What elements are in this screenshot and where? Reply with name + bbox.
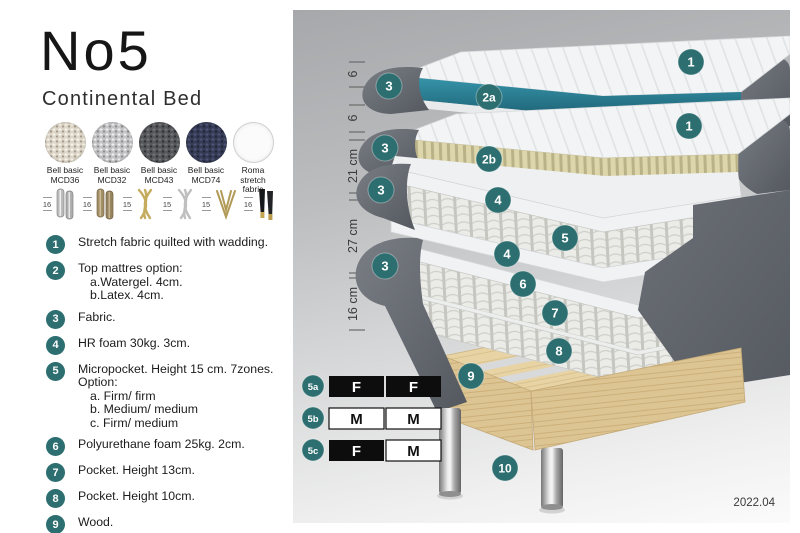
swatch-code: MCD43	[141, 176, 177, 186]
leg-option-cylinder-bronze: 16	[80, 186, 120, 222]
leg-height-label: 16	[244, 196, 253, 213]
feature-item-6: 6 Polyurethane foam 25kg. 2cm.	[46, 438, 291, 456]
swatch-code: MCD74	[188, 176, 224, 186]
feature-item-3: 3 Fabric.	[46, 311, 291, 329]
feature-text: Fabric.	[78, 311, 116, 329]
feature-item-4: 4 HR foam 30kg. 3cm.	[46, 337, 291, 355]
svg-text:3: 3	[377, 183, 384, 198]
badge-7-pocket13: 7	[542, 300, 568, 326]
swatch-texture	[139, 122, 180, 163]
swatch-bell-basic-mcd32: Bell basic MCD32	[91, 122, 133, 195]
version-label: 2022.04	[733, 497, 775, 509]
feature-text: Polyurethane foam 25kg. 2cm.	[78, 438, 245, 456]
firmness-badge-label: 5c	[308, 446, 319, 457]
swatch-code: MCD32	[94, 176, 130, 186]
feature-main-line: Micropocket. Height 15 cm. 7zones. Optio…	[78, 363, 291, 390]
firmness-row-5c: 5c F M	[302, 439, 441, 461]
feature-text: Pocket. Height 13cm.	[78, 464, 195, 482]
svg-text:3: 3	[385, 79, 392, 94]
firmness-value: F	[352, 443, 361, 460]
feature-sub-line: a.Watergel. 4cm.	[90, 276, 183, 290]
measure-topper1: 6	[346, 70, 360, 77]
cross-gold-leg-icon	[134, 186, 158, 222]
feature-sub-line: b.Latex. 4cm.	[90, 289, 183, 303]
metal-leg-front-center	[541, 448, 563, 508]
firmness-row-5b: 5b M M	[302, 407, 441, 429]
leg-height-label: 15	[123, 196, 132, 213]
svg-text:8: 8	[555, 344, 562, 359]
firmness-value: M	[407, 411, 420, 428]
badge-9-wood: 9	[458, 363, 484, 389]
feature-text: Micropocket. Height 15 cm. 7zones. Optio…	[78, 363, 291, 431]
swatch-label: Bell basic MCD43	[141, 166, 177, 185]
product-sheet: No5 Continental Bed Bell basic MCD36 Bel…	[0, 0, 800, 533]
svg-text:1: 1	[687, 55, 694, 70]
leg-option-cylinder-silver: 16	[40, 186, 80, 222]
feature-item-1: 1 Stretch fabric quilted with wadding.	[46, 236, 291, 254]
measure-topper2: 6	[346, 114, 360, 121]
badge-3-mattress2: 3	[372, 253, 398, 279]
feature-list: 1 Stretch fabric quilted with wadding. 2…	[46, 236, 291, 533]
badge-8-pocket10: 8	[546, 338, 572, 364]
measure-mattress-27cm: 27 cm	[346, 219, 360, 253]
badge-5-micropocket: 5	[552, 225, 578, 251]
leg-option-black-gold: 16	[240, 186, 280, 222]
badge-3-topper1: 3	[376, 73, 402, 99]
leg-option-hairpin-gold: 15	[200, 186, 240, 222]
feature-number-badge: 8	[46, 489, 65, 508]
measure-leg-16cm: 16 cm	[346, 287, 360, 321]
feature-item-9: 9 Wood.	[46, 516, 291, 533]
leg-foot	[541, 504, 563, 510]
leg-height-label: 16	[83, 196, 92, 213]
swatch-bell-basic-mcd43: Bell basic MCD43	[138, 122, 180, 195]
product-title: No5	[40, 18, 152, 83]
feature-text: HR foam 30kg. 3cm.	[78, 337, 190, 355]
svg-text:6: 6	[519, 277, 526, 292]
feature-number-badge: 3	[46, 310, 65, 329]
cylinder-bronze-leg-icon	[94, 186, 118, 222]
feature-number-badge: 9	[46, 515, 65, 533]
feature-sub-line: a. Firm/ firm	[90, 390, 291, 404]
feature-sub-line: b. Medium/ medium	[90, 403, 291, 417]
feature-number-badge: 2	[46, 261, 65, 280]
feature-number-badge: 5	[46, 362, 65, 381]
firmness-value: F	[409, 379, 418, 396]
swatch-bell-basic-mcd36: Bell basic MCD36	[44, 122, 86, 195]
feature-number-badge: 4	[46, 336, 65, 355]
swatch-texture	[92, 122, 133, 163]
firmness-row-5a: 5a F F	[302, 375, 441, 397]
hairpin-leg-icon	[213, 186, 239, 222]
leg-foot	[439, 491, 461, 497]
feature-item-7: 7 Pocket. Height 13cm.	[46, 464, 291, 482]
svg-text:2b: 2b	[482, 153, 496, 167]
firmness-value: M	[350, 411, 363, 428]
badge-2a-watergel: 2a	[476, 84, 502, 110]
svg-text:10: 10	[498, 462, 512, 476]
firmness-value: F	[352, 379, 361, 396]
badge-10-metal-leg: 10	[492, 455, 518, 481]
feature-number-badge: 1	[46, 235, 65, 254]
swatch-code: MCD36	[47, 176, 83, 186]
feature-item-5: 5 Micropocket. Height 15 cm. 7zones. Opt…	[46, 363, 291, 431]
svg-text:7: 7	[551, 306, 558, 321]
feature-main-line: Top mattres option:	[78, 262, 183, 276]
svg-text:1: 1	[685, 119, 692, 134]
leg-option-cross-gold: 15	[120, 186, 160, 222]
black-gold-leg-icon	[255, 186, 277, 222]
swatch-label: Bell basic MCD36	[47, 166, 83, 185]
bed-cutaway-illustration: 6 6 21 cm 27 cm 16 cm	[293, 10, 790, 523]
metal-leg-front-left	[439, 408, 461, 494]
swatch-label: Bell basic MCD74	[188, 166, 224, 185]
svg-text:9: 9	[467, 369, 474, 384]
badge-3-topper2: 3	[372, 135, 398, 161]
swatch-bell-basic-mcd74: Bell basic MCD74	[185, 122, 227, 195]
feature-item-8: 8 Pocket. Height 10cm.	[46, 490, 291, 508]
leg-options: 16 16 15	[40, 186, 280, 222]
cutaway-panel: 6 6 21 cm 27 cm 16 cm	[293, 10, 790, 523]
swatch-roma-stretch: Roma stretch fabric	[232, 122, 274, 195]
svg-text:4: 4	[494, 193, 502, 208]
svg-text:2a: 2a	[482, 91, 496, 105]
firmness-badge-label: 5b	[307, 414, 318, 425]
firmness-badge-label: 5a	[308, 382, 319, 393]
swatch-texture	[233, 122, 274, 163]
product-subtitle: Continental Bed	[42, 88, 202, 111]
swatch-label: Bell basic MCD32	[94, 166, 130, 185]
feature-text: Stretch fabric quilted with wadding.	[78, 236, 268, 254]
leg-option-cross-silver: 15	[160, 186, 200, 222]
info-column: No5 Continental Bed Bell basic MCD36 Bel…	[0, 0, 293, 533]
feature-text: Pocket. Height 10cm.	[78, 490, 195, 508]
cylinder-silver-leg-icon	[54, 186, 78, 222]
leg-height-label: 16	[43, 196, 52, 213]
swatch-texture	[45, 122, 86, 163]
feature-text: Wood.	[78, 516, 113, 533]
badge-4-foam-top: 4	[485, 187, 511, 213]
badge-6-pu-foam: 6	[510, 271, 536, 297]
badge-4-foam-bottom: 4	[494, 241, 520, 267]
leg-height-label: 15	[202, 196, 211, 213]
badge-1-topper1: 1	[678, 49, 704, 75]
feature-number-badge: 7	[46, 463, 65, 482]
feature-text: Top mattres option: a.Watergel. 4cm. b.L…	[78, 262, 183, 303]
svg-text:3: 3	[381, 141, 388, 156]
leg-height-label: 15	[163, 196, 172, 213]
svg-text:4: 4	[503, 247, 511, 262]
feature-item-2: 2 Top mattres option: a.Watergel. 4cm. b…	[46, 262, 291, 303]
swatch-texture	[186, 122, 227, 163]
badge-1-topper2: 1	[676, 113, 702, 139]
badge-3-mattress1: 3	[368, 177, 394, 203]
badge-2b-latex: 2b	[476, 146, 502, 172]
svg-text:3: 3	[381, 259, 388, 274]
fabric-swatches: Bell basic MCD36 Bell basic MCD32 Bell b…	[44, 122, 276, 195]
cross-silver-leg-icon	[174, 186, 198, 222]
feature-sub-line: c. Firm/ medium	[90, 417, 291, 431]
firmness-table: 5a F F 5b M M 5c	[302, 375, 441, 461]
svg-text:5: 5	[561, 231, 568, 246]
measure-mattress-21cm: 21 cm	[346, 149, 360, 183]
feature-number-badge: 6	[46, 437, 65, 456]
firmness-value: M	[407, 443, 420, 460]
